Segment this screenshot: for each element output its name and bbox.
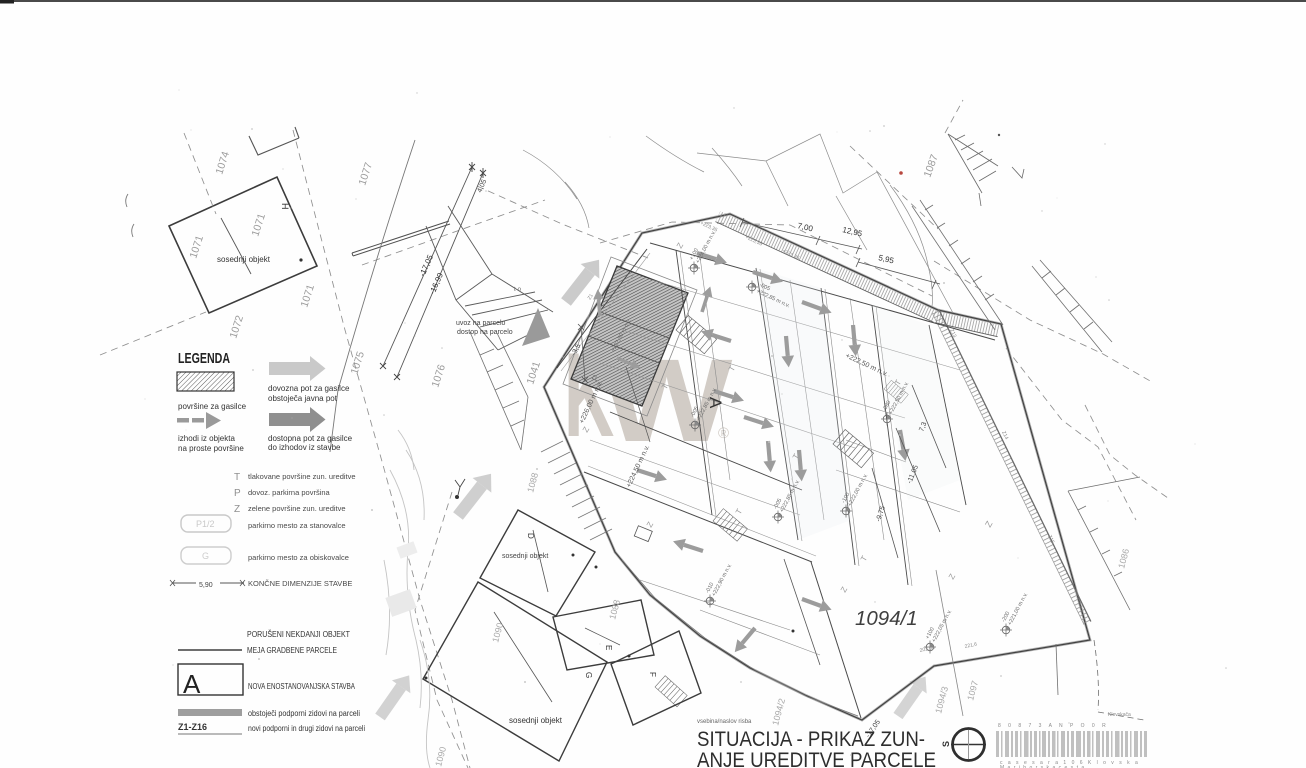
svg-text:5,90: 5,90	[199, 582, 213, 589]
svg-text:obstoječa javna pot: obstoječa javna pot	[268, 394, 338, 403]
svg-text:zelene površine zun. ureditve: zelene površine zun. ureditve	[248, 504, 346, 513]
svg-text:SITUACIJA - PRIKAZ ZUN-: SITUACIJA - PRIKAZ ZUN-	[697, 728, 925, 751]
svg-text:G: G	[202, 551, 209, 561]
svg-text:obstoječi podporni zidovi na p: obstoječi podporni zidovi na parceli	[248, 709, 360, 718]
svg-text:dovozna pot za gasilce: dovozna pot za gasilce	[268, 384, 350, 393]
svg-text:Z: Z	[234, 504, 240, 515]
svg-text:S: S	[941, 741, 951, 747]
svg-text:do izhodov iz stavbe: do izhodov iz stavbe	[268, 443, 341, 452]
svg-text:na proste površine: na proste površine	[178, 444, 244, 453]
svg-text:P1/2: P1/2	[196, 519, 215, 529]
svg-text:PORUŠENI NEKDANJI OBJEKT: PORUŠENI NEKDANJI OBJEKT	[247, 630, 350, 639]
svg-text:1094/1: 1094/1	[855, 607, 918, 630]
svg-text:uvoz na parcelo: uvoz na parcelo	[456, 320, 506, 327]
svg-text:G: G	[584, 672, 593, 678]
svg-text:P: P	[234, 488, 241, 499]
svg-text:tlakovane površine zun. uredit: tlakovane površine zun. ureditve	[248, 472, 356, 481]
svg-text:MEJA GRADBENE PARCELE: MEJA GRADBENE PARCELE	[247, 646, 337, 655]
svg-text:dostop na parcelo: dostop na parcelo	[457, 329, 513, 336]
svg-text:A: A	[183, 669, 201, 699]
svg-text:sosednji objekt: sosednji objekt	[502, 553, 548, 560]
svg-text:8 0 8 7 3 A N P O 0 R: 8 0 8 7 3 A N P O 0 R	[998, 723, 1109, 729]
svg-text:novi podporni in drugi zidovi: novi podporni in drugi zidovi na parceli	[248, 724, 365, 733]
svg-text:sosednji objekt: sosednji objekt	[217, 255, 271, 264]
svg-text:LEGENDA: LEGENDA	[178, 350, 230, 367]
svg-text:parkirno mesto za obiskovalce: parkirno mesto za obiskovalce	[248, 553, 349, 562]
svg-text:F: F	[648, 672, 657, 677]
svg-text:E: E	[604, 645, 613, 650]
svg-text:sosednji objekt: sosednji objekt	[509, 716, 563, 725]
svg-text:KONČNE DIMENZIJE STAVBE: KONČNE DIMENZIJE STAVBE	[248, 579, 352, 588]
svg-text:D: D	[526, 533, 535, 539]
svg-text:H: H	[280, 203, 290, 210]
svg-text:izhodi iz objekta: izhodi iz objekta	[178, 434, 235, 443]
svg-text:vsebina/naslov risba: vsebina/naslov risba	[697, 719, 752, 725]
svg-text:NOVA ENOSTANOVANJSKA STAVBA: NOVA ENOSTANOVANJSKA STAVBA	[248, 682, 356, 691]
svg-text:dostopna pot za gasilce: dostopna pot za gasilce	[268, 434, 353, 443]
svg-text:dovoz. parkirna površina: dovoz. parkirna površina	[248, 488, 331, 497]
svg-text:t-o: t-o	[514, 287, 522, 293]
svg-text:parkirno mesto za stanovalce: parkirno mesto za stanovalce	[248, 521, 346, 530]
svg-text:A: A	[706, 397, 725, 409]
svg-text:Z1-Z16: Z1-Z16	[178, 722, 207, 732]
svg-text:Klovskača: Klovskača	[1108, 712, 1131, 718]
svg-text:T: T	[234, 472, 240, 483]
svg-text:površine za gasilce: površine za gasilce	[178, 402, 247, 411]
svg-text:ANJE UREDITVE PARCELE: ANJE UREDITVE PARCELE	[697, 749, 936, 768]
